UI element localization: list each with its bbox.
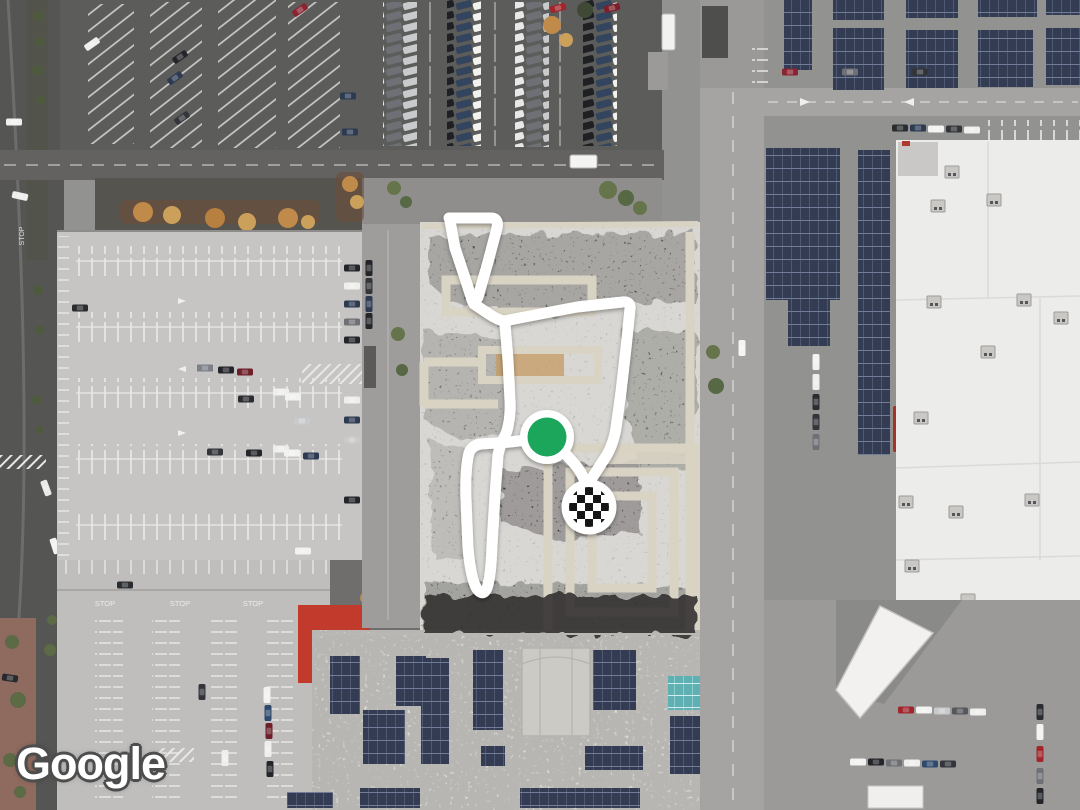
checkered-flag-icon bbox=[569, 487, 609, 527]
pavement-stop-5: STOP bbox=[243, 599, 263, 608]
route-end-marker[interactable] bbox=[562, 480, 617, 535]
road-top-horizontal bbox=[0, 150, 664, 231]
satellite-canvas[interactable]: STOP STOP bbox=[0, 0, 1080, 810]
bottom-right-area bbox=[764, 600, 1080, 810]
parking-deck-left bbox=[57, 230, 362, 560]
top-right-road bbox=[764, 88, 1080, 116]
pavement-stop-3: STOP bbox=[95, 599, 115, 608]
left-road: STOP STOP bbox=[0, 0, 64, 810]
center-alley bbox=[362, 224, 420, 628]
pavement-stop-2: STOP bbox=[19, 226, 26, 245]
route-start-marker[interactable] bbox=[520, 410, 574, 464]
start-green-dot bbox=[528, 418, 567, 457]
google-watermark: Google bbox=[16, 738, 165, 790]
parking-lot-top-center bbox=[362, 0, 675, 152]
satellite-map[interactable]: STOP STOP bbox=[0, 0, 1080, 810]
pavement-stop-4: STOP bbox=[170, 599, 190, 608]
parking-lot-top-left bbox=[60, 0, 362, 152]
